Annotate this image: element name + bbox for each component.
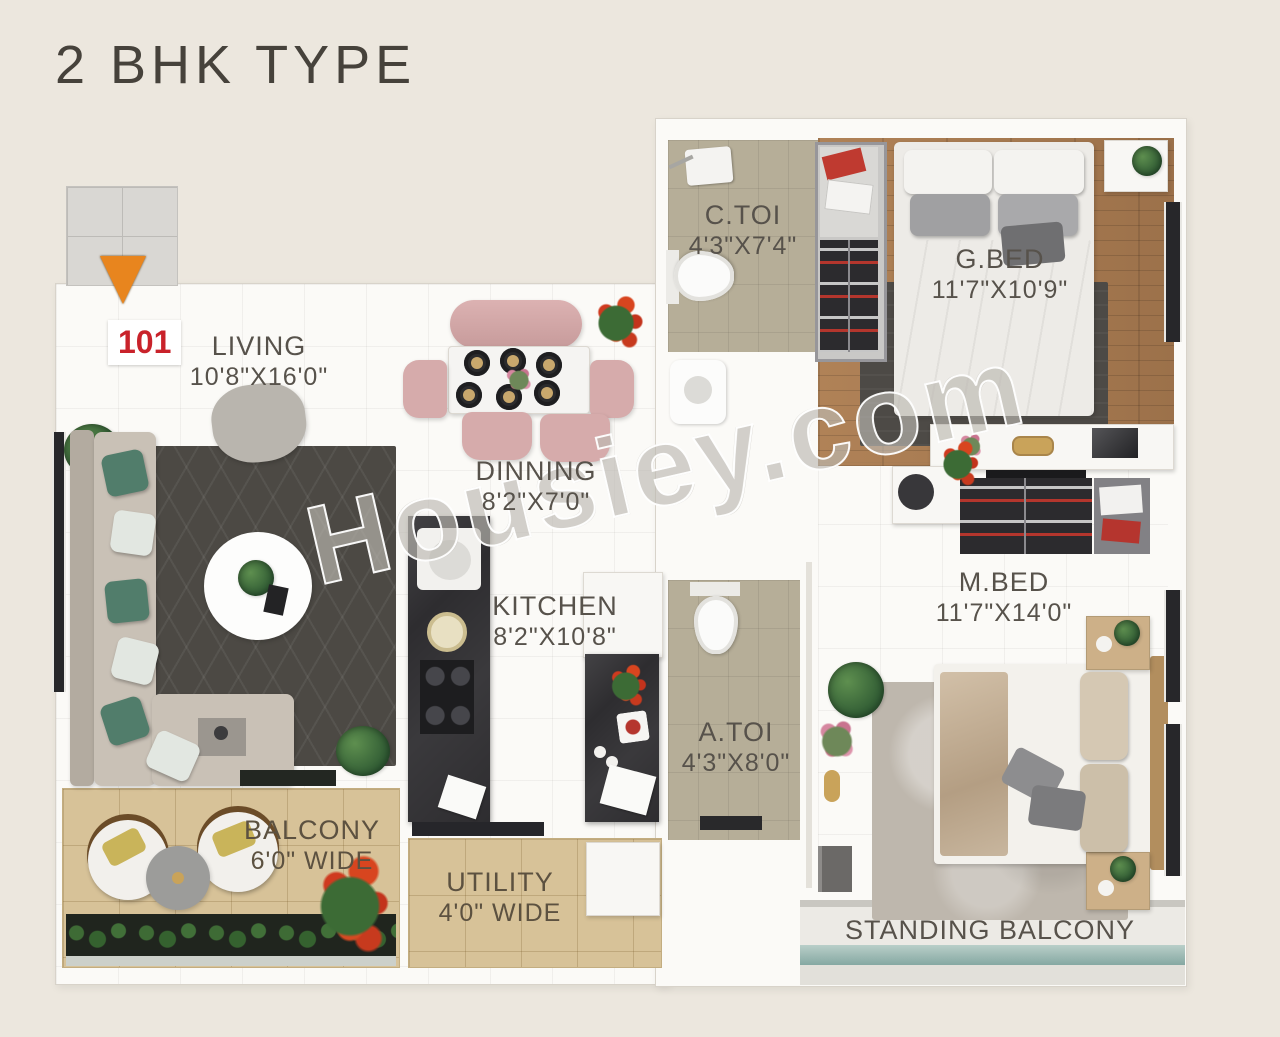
dining-chair bbox=[590, 360, 634, 418]
plate bbox=[536, 352, 562, 378]
utility-name: UTILITY bbox=[410, 866, 590, 898]
egg bbox=[594, 746, 606, 758]
living-dim: 10'8"X16'0" bbox=[169, 362, 349, 392]
balcony-edge bbox=[66, 956, 396, 966]
table-centerpiece-flowers bbox=[502, 366, 536, 392]
mbed-picture bbox=[818, 846, 852, 892]
mbed-pillow bbox=[1080, 672, 1128, 760]
nightstand-lamp bbox=[1098, 880, 1114, 896]
ctoi-name: C.TOI bbox=[683, 199, 803, 231]
gbed-window bbox=[1164, 202, 1182, 342]
nightstand-plant bbox=[1132, 146, 1162, 176]
bath-mat bbox=[700, 816, 762, 830]
vegetables bbox=[606, 662, 650, 706]
kitchen-name: KITCHEN bbox=[455, 590, 655, 622]
bed-pillow-gray bbox=[910, 194, 990, 236]
living-window bbox=[52, 432, 66, 692]
gbed-label: G.BED 11'7"X10'9" bbox=[900, 243, 1100, 305]
washing-machine bbox=[586, 842, 660, 916]
mbed-wardrobe bbox=[960, 478, 1092, 554]
dining-chair bbox=[462, 412, 532, 460]
dresser-box bbox=[1092, 428, 1138, 458]
wardrobe-white-box bbox=[824, 179, 873, 214]
ctoi-label: C.TOI 4'3"X7'4" bbox=[683, 199, 803, 261]
dinning-dim: 8'2"X7'0" bbox=[436, 487, 636, 517]
shower-head bbox=[685, 146, 734, 186]
sofa-pillow bbox=[109, 509, 156, 556]
balcony-name: BALCONY bbox=[222, 814, 402, 846]
mbed-dim: 11'7"X14'0" bbox=[904, 598, 1104, 628]
mbed-wardrobe-divider bbox=[1024, 478, 1026, 554]
table-ornament bbox=[172, 872, 184, 884]
standing-balcony-name: STANDING BALCONY bbox=[825, 914, 1155, 946]
bed-pillow bbox=[904, 150, 992, 194]
living-plant bbox=[336, 726, 390, 776]
sofa-pillow bbox=[100, 448, 150, 498]
mbed-window bbox=[1164, 590, 1182, 702]
standing-balcony-water-band bbox=[800, 945, 1185, 965]
atoi-name: A.TOI bbox=[672, 716, 800, 748]
balcony-label: BALCONY 6'0" WIDE bbox=[222, 814, 402, 876]
entry-arrow-icon bbox=[100, 256, 146, 304]
atoi-dim: 4'3"X8'0" bbox=[672, 748, 800, 778]
side-unit-red-item bbox=[1101, 518, 1141, 543]
desk-chair bbox=[898, 474, 934, 510]
media-unit-knob bbox=[214, 726, 228, 740]
dining-flower-vase bbox=[590, 293, 648, 348]
mbed-pillow bbox=[1080, 764, 1128, 852]
mbed-pink-flowers bbox=[816, 714, 858, 764]
basin-bowl bbox=[684, 376, 712, 404]
wardrobe-divider bbox=[848, 240, 850, 352]
mbed-plant bbox=[828, 662, 884, 718]
mbed-name: M.BED bbox=[904, 566, 1104, 598]
nightstand-lamp bbox=[1096, 636, 1112, 652]
tv-bar bbox=[986, 470, 1086, 478]
nightstand-plant bbox=[1110, 856, 1136, 882]
gbed-dim: 11'7"X10'9" bbox=[900, 275, 1100, 305]
sofa-back bbox=[70, 430, 94, 786]
mbed-silk-blanket bbox=[940, 672, 1008, 856]
dinning-label: DINNING 8'2"X7'0" bbox=[436, 455, 636, 517]
gbed-name: G.BED bbox=[900, 243, 1100, 275]
plate bbox=[456, 382, 482, 408]
standing-balcony-ledge bbox=[800, 965, 1185, 985]
sink-basin bbox=[429, 540, 471, 580]
dinning-name: DINNING bbox=[436, 455, 636, 487]
plate bbox=[464, 350, 490, 376]
dining-chair bbox=[403, 360, 447, 418]
mbed-gold-vase bbox=[824, 770, 840, 802]
nightstand-plant bbox=[1114, 620, 1140, 646]
toilet-tank bbox=[690, 582, 740, 596]
dresser-tray bbox=[1012, 436, 1054, 456]
page-title: 2 BHK TYPE bbox=[55, 34, 416, 96]
passage-red-plant bbox=[938, 438, 982, 486]
plate-with-berries bbox=[616, 710, 650, 744]
plate bbox=[534, 380, 560, 406]
living-name: LIVING bbox=[169, 330, 349, 362]
sofa-pillow bbox=[104, 578, 150, 624]
balcony-dim: 6'0" WIDE bbox=[222, 846, 402, 876]
ctoi-dim: 4'3"X7'4" bbox=[683, 231, 803, 261]
side-unit-item bbox=[1099, 485, 1143, 516]
living-label: LIVING 10'8"X16'0" bbox=[169, 330, 349, 392]
utility-label: UTILITY 4'0" WIDE bbox=[410, 866, 590, 928]
standing-balcony-label: STANDING BALCONY bbox=[825, 914, 1155, 946]
atoi-label: A.TOI 4'3"X8'0" bbox=[672, 716, 800, 778]
mbed-label: M.BED 11'7"X14'0" bbox=[904, 566, 1104, 628]
floor-plan-canvas: 2 BHK TYPE 101 LIVING 10'8"X16'0" DINNIN… bbox=[0, 0, 1280, 1037]
mbed-throw-pillow bbox=[1027, 784, 1086, 831]
bed-pillow bbox=[994, 150, 1084, 194]
mbed-wall-line bbox=[806, 562, 812, 888]
dining-bench bbox=[450, 300, 582, 348]
utility-dim: 4'0" WIDE bbox=[410, 898, 590, 928]
balcony-threshold-planter bbox=[240, 770, 336, 786]
kitchen-dim: 8'2"X10'8" bbox=[455, 622, 655, 652]
kitchen-label: KITCHEN 8'2"X10'8" bbox=[455, 590, 655, 652]
kitchen-threshold bbox=[412, 822, 544, 836]
mbed-window bbox=[1164, 724, 1182, 876]
stove bbox=[420, 660, 474, 734]
